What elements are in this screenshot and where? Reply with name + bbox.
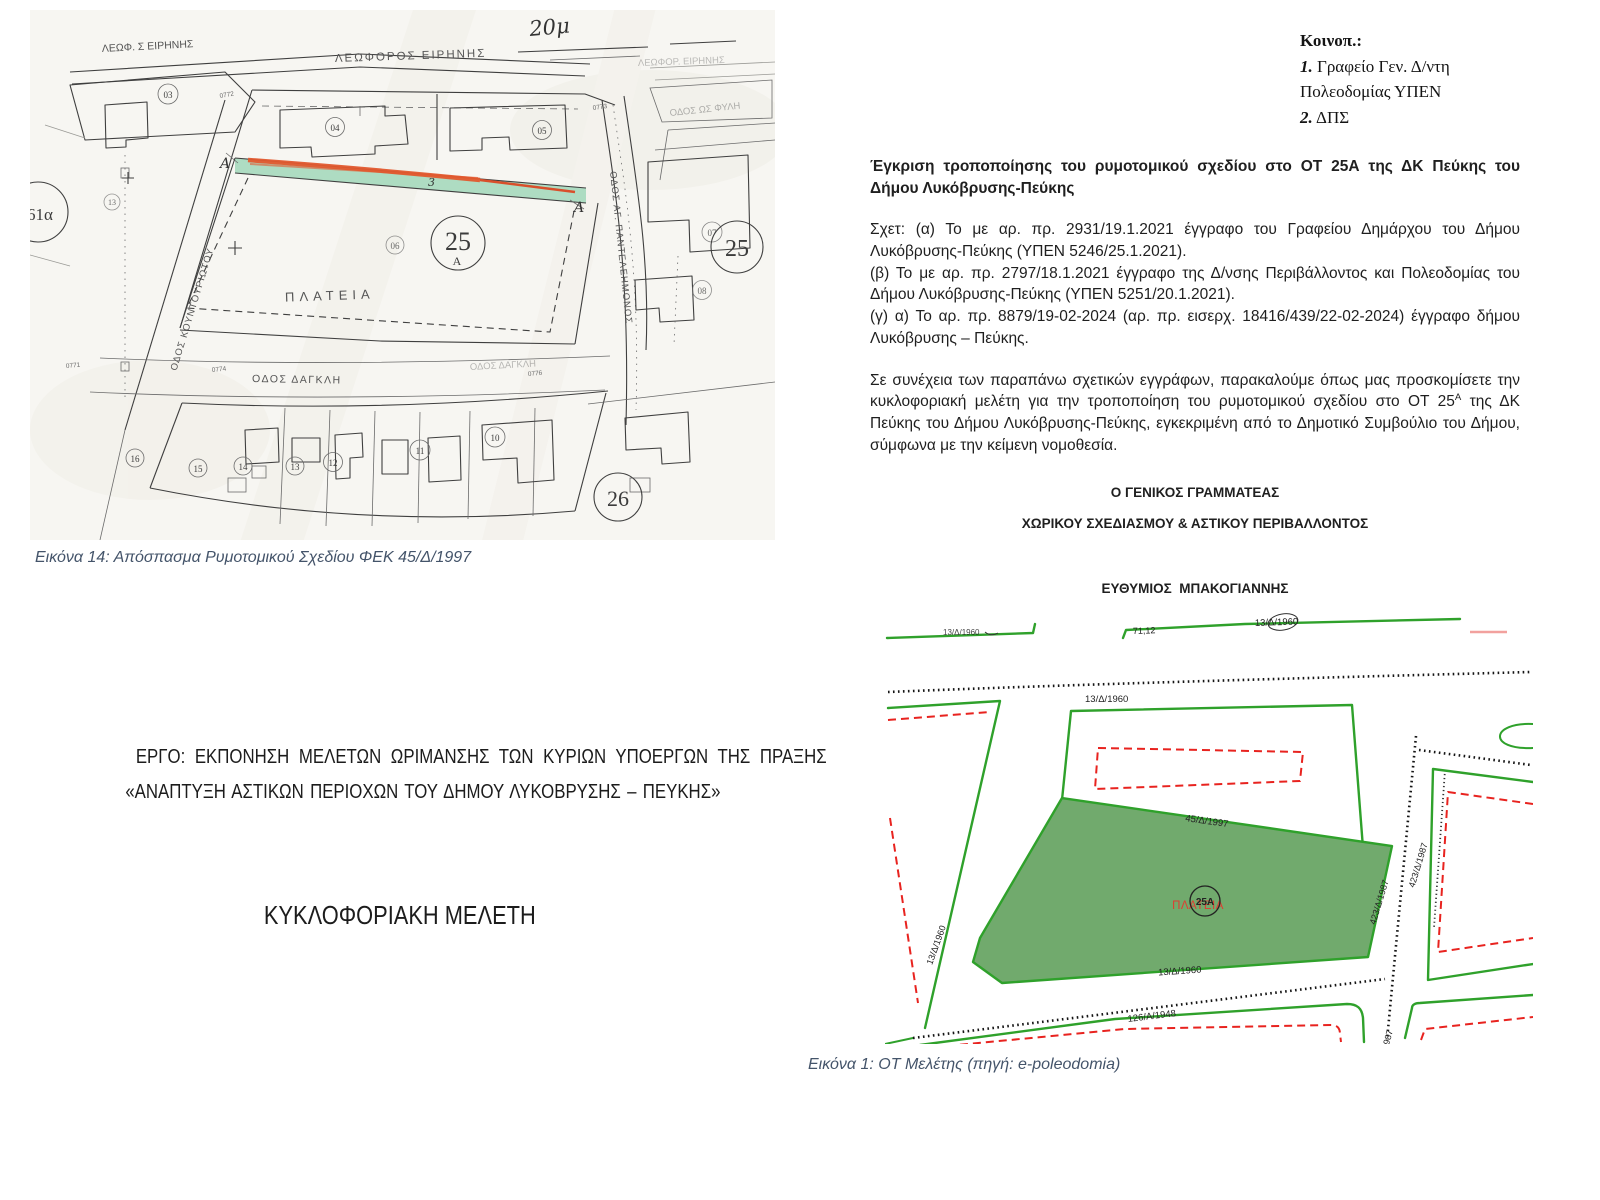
signature-title-2: ΧΩΡΙΚΟΥ ΣΧΕΔΙΑΣΜΟΥ & ΑΣΤΙΚΟΥ ΠΕΡΙΒΑΛΛΟΝΤ… [870, 515, 1520, 534]
parcel-10-label: 10 [491, 433, 501, 443]
strip-number: 3 [428, 176, 435, 189]
project-title-block: ΕΡΓΟ: ΕΚΠΟΝΗΣΗ ΜΕΛΕΤΩΝ ΩΡΙΜΑΝΣΗΣ ΤΩΝ ΚΥΡ… [60, 745, 740, 931]
distribution-list: Κοινοπ.: 1. Γραφείο Γεν. Δ/ντη Πολεοδομί… [1300, 28, 1520, 130]
street-label-bottom: ΟΔΟΣ ΔΑΓΚΛΗ [252, 373, 342, 387]
fek-label-top-clipped: 13/Δ/1960 [943, 628, 980, 637]
figure-1-caption: Εικόνα 1: ΟΤ Μελέτης (πηγή: e-poleodomia… [808, 1056, 1408, 1074]
figure-14-caption: Εικόνα 14: Απόσπασμα Ρυμοτομικού Σχεδίου… [35, 549, 735, 567]
fek-label-block-top: 13/Δ/1960 [1085, 694, 1128, 705]
parcel-13-label: 13 [291, 462, 301, 472]
distribution-item-1: 1. Γραφείο Γεν. Δ/ντη [1300, 54, 1520, 80]
parcel-12-label: 12 [329, 458, 338, 468]
reference-c: (γ) α) Το αρ. πρ. 8879/19-02-2024 (αρ. π… [870, 306, 1520, 349]
parcel-14-label: 14 [239, 462, 249, 472]
project-line-1: ΕΡΓΟ: ΕΚΠΟΝΗΣΗ ΜΕΛΕΤΩΝ ΩΡΙΜΑΝΣΗΣ ΤΩΝ ΚΥΡ… [60, 745, 740, 769]
distribution-item-2: 2. ΔΠΣ [1300, 105, 1520, 131]
reference-a: Σχετ: (α) Το με αρ. πρ. 2931/19.1.2021 έ… [870, 219, 1520, 262]
parcel-61a-label: 61α [30, 205, 53, 224]
letter-block: Κοινοπ.: 1. Γραφείο Γεν. Δ/ντη Πολεοδομί… [870, 28, 1520, 599]
letter-subject: Έγκριση τροποποίησης του ρυμοτομικού σχε… [870, 156, 1520, 199]
parcel-03-label: 03 [164, 90, 174, 100]
plaza-label: ΠΛΑΤΕΙΑ [285, 286, 375, 304]
block-25A-suffix: Α [453, 254, 462, 268]
distribution-header: Κοινοπ.: [1300, 28, 1520, 54]
parcel-13-left-label: 13 [108, 198, 116, 207]
signature-name: ΕΥΘΥΜΙΟΣ ΜΠΑΚΟΓΙΑΝΝΗΣ [870, 580, 1520, 599]
scale-note: 20μ [527, 14, 570, 42]
block-25A-number: 25 [445, 227, 471, 256]
figure-1-map: 13/Δ/1960 71,12 13/Δ/1960 13/Δ/1960 13/Δ… [885, 608, 1533, 1044]
svg-text:0771: 0771 [66, 362, 81, 370]
block-26-number: 26 [607, 486, 629, 511]
study-title: ΚΥΚΛΟΦΟΡΙΑΚΗ ΜΕΛΕΤΗ [60, 900, 740, 931]
block-25A-label: 25Α [1196, 897, 1214, 908]
letter-body: Σε συνέχεια των παραπάνω σχετικών εγγράφ… [870, 370, 1520, 457]
parcel-11-label: 11 [416, 446, 425, 456]
letter-references: Σχετ: (α) Το με αρ. πρ. 2931/19.1.2021 έ… [870, 219, 1520, 349]
reference-b: (β) Το με αρ. πρ. 2797/18.1.2021 έγγραφο… [870, 263, 1520, 306]
parcel-04-label: 04 [331, 123, 341, 133]
block-25-number: 25 [725, 236, 749, 262]
figure-14-map: 20μ ΛΕΩΦ. Σ ΕΙΡΗΝΗΣ ΛΕΩΦΟΡΟΣ ΕΙΡΗΝΗΣ ΛΕΩ… [30, 10, 775, 540]
measure-label: 71,12 [1133, 625, 1156, 636]
parcel-15-label: 15 [194, 464, 204, 474]
parcel-05-label: 05 [538, 126, 548, 136]
parcel-07-label: 07 [708, 228, 718, 238]
project-line-2: «ΑΝΑΠΤΥΞΗ ΑΣΤΙΚΩΝ ΠΕΡΙΟΧΩΝ ΤΟΥ ΔΗΜΟΥ ΛΥΚ… [60, 780, 740, 804]
distribution-item-1b: Πολεοδομίας ΥΠΕΝ [1300, 79, 1520, 105]
fek-label-top-right: 13/Δ/1960 [1255, 616, 1299, 629]
signature-title-1: Ο ΓΕΝΙΚΟΣ ΓΡΑΜΜΑΤΕΑΣ [870, 484, 1520, 503]
parcel-16-label: 16 [131, 454, 141, 464]
svg-text:0776: 0776 [528, 370, 543, 378]
section-letter-left: Α [218, 156, 230, 172]
document-page: 20μ ΛΕΩΦ. Σ ΕΙΡΗΝΗΣ ΛΕΩΦΟΡΟΣ ΕΙΡΗΝΗΣ ΛΕΩ… [0, 0, 1600, 1200]
parcel-08-label: 08 [698, 286, 708, 296]
parcel-06-label: 06 [391, 241, 401, 251]
